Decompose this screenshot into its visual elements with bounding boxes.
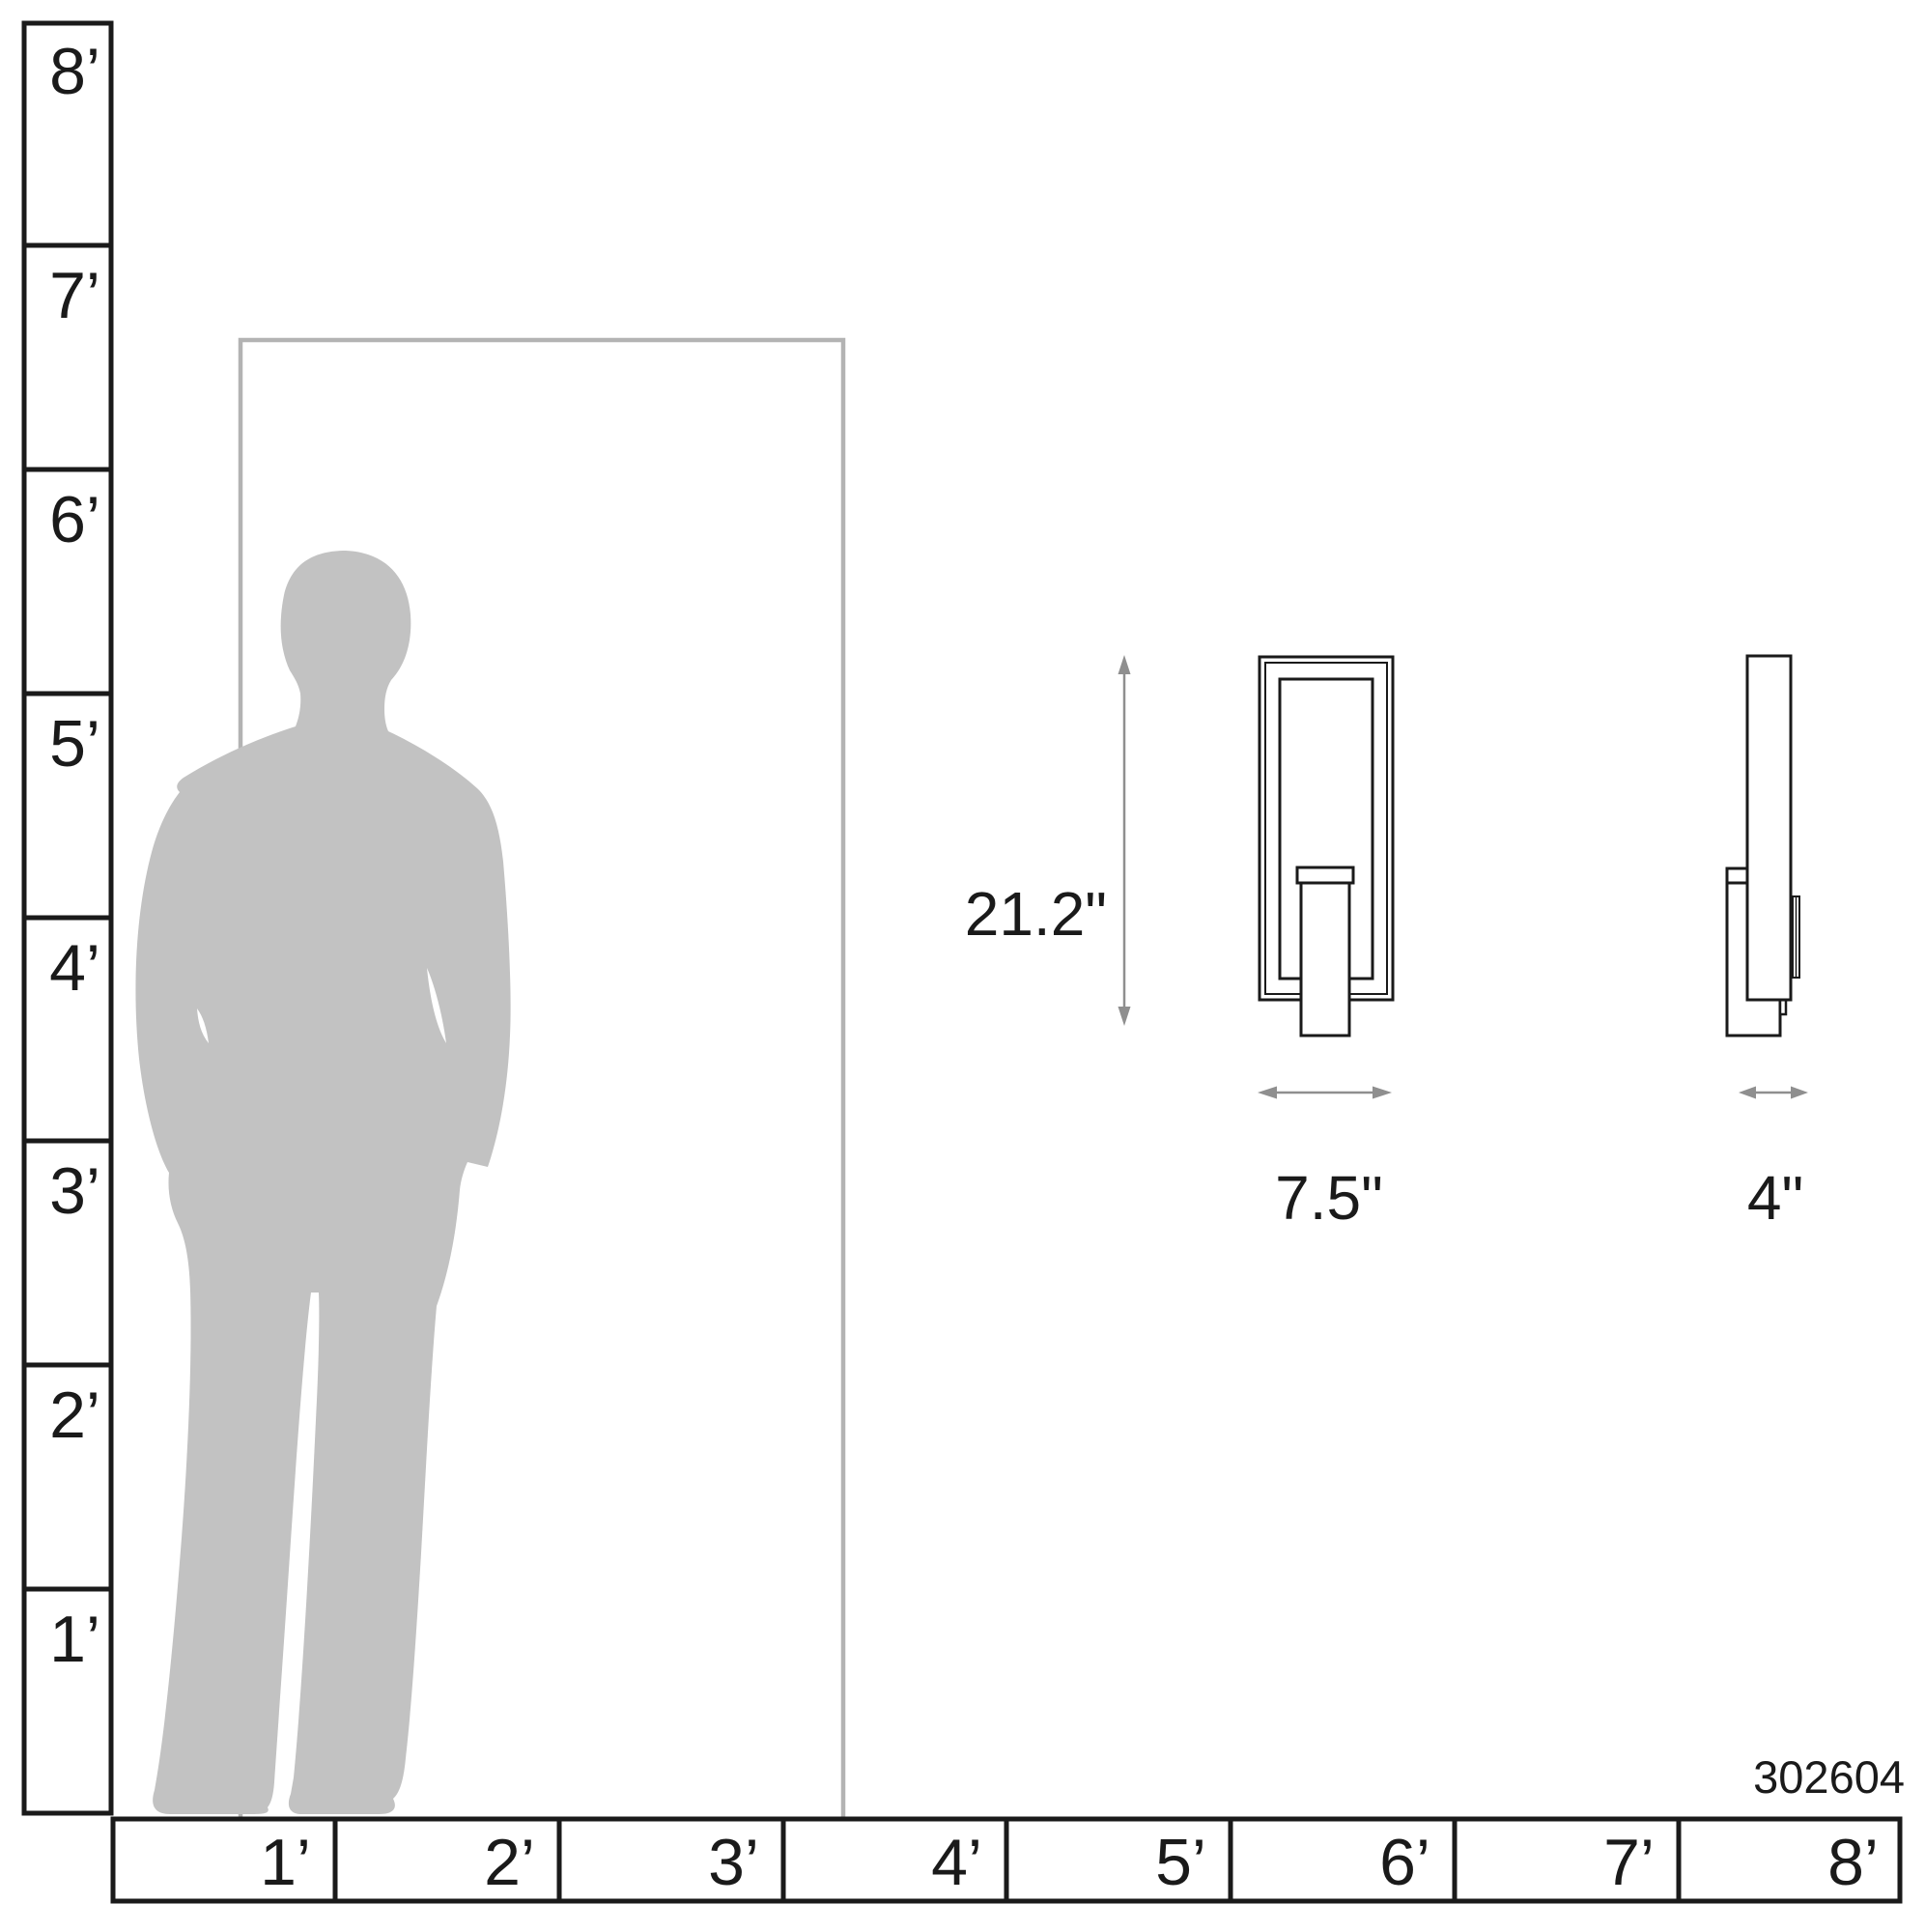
- depth-arrow-head-left: [1739, 1087, 1756, 1099]
- width-arrow-head-right: [1373, 1087, 1392, 1099]
- width-ruler-label-5ft: 5’: [1155, 1826, 1206, 1899]
- sconce-front-lamp-cap: [1297, 867, 1353, 883]
- height-ruler-label-3ft: 3’: [49, 1154, 100, 1228]
- depth-dimension-label: 4": [1747, 1163, 1803, 1233]
- width-ruler-label-4ft: 4’: [931, 1826, 982, 1899]
- width-arrow-head-left: [1258, 1087, 1277, 1099]
- width-dimension-label: 7.5": [1275, 1163, 1383, 1233]
- diagram-svg: 8’ 7’ 6’ 5’ 4’ 3’ 2’ 1’ 1’ 2’ 3’ 4: [0, 0, 1925, 1932]
- width-ruler-label-1ft: 1’: [260, 1826, 311, 1899]
- dimension-diagram: 8’ 7’ 6’ 5’ 4’ 3’ 2’ 1’ 1’ 2’ 3’ 4: [0, 0, 1925, 1932]
- height-ruler-label-5ft: 5’: [49, 707, 100, 781]
- width-ruler-label-8ft: 8’: [1827, 1826, 1879, 1899]
- sconce-side-view: [1727, 656, 1799, 1036]
- height-ruler: 8’ 7’ 6’ 5’ 4’ 3’ 2’ 1’: [24, 23, 111, 1813]
- width-ruler-label-2ft: 2’: [484, 1826, 535, 1899]
- sconce-side-frame-profile: [1747, 656, 1791, 1000]
- depth-dimension-arrow: [1739, 1087, 1808, 1099]
- width-ruler: 1’ 2’ 3’ 4’ 5’ 6’ 7’ 8’: [113, 1819, 1900, 1901]
- product-number: 302604: [1753, 1751, 1905, 1803]
- height-ruler-label-4ft: 4’: [49, 931, 100, 1005]
- sconce-front-lamp-body: [1301, 883, 1349, 1036]
- height-arrow-head-top: [1118, 655, 1131, 674]
- person-silhouette: [135, 551, 510, 1814]
- width-ruler-label-7ft: 7’: [1603, 1826, 1655, 1899]
- height-dimension-arrow: [1118, 655, 1131, 1026]
- height-dimension-label: 21.2": [965, 879, 1107, 949]
- person-silhouette-body: [135, 551, 510, 1814]
- height-ruler-label-6ft: 6’: [49, 483, 100, 556]
- height-arrow-head-bottom: [1118, 1007, 1131, 1026]
- sconce-side-bottom-tab: [1780, 1000, 1786, 1014]
- width-ruler-label-6ft: 6’: [1379, 1826, 1430, 1899]
- depth-arrow-head-right: [1791, 1087, 1808, 1099]
- height-ruler-label-7ft: 7’: [49, 259, 100, 332]
- width-ruler-label-3ft: 3’: [708, 1826, 759, 1899]
- height-ruler-label-8ft: 8’: [49, 35, 100, 108]
- height-ruler-label-2ft: 2’: [49, 1378, 100, 1452]
- sconce-front-view: [1260, 657, 1393, 1036]
- height-ruler-label-1ft: 1’: [49, 1603, 100, 1676]
- width-dimension-arrow: [1258, 1087, 1392, 1099]
